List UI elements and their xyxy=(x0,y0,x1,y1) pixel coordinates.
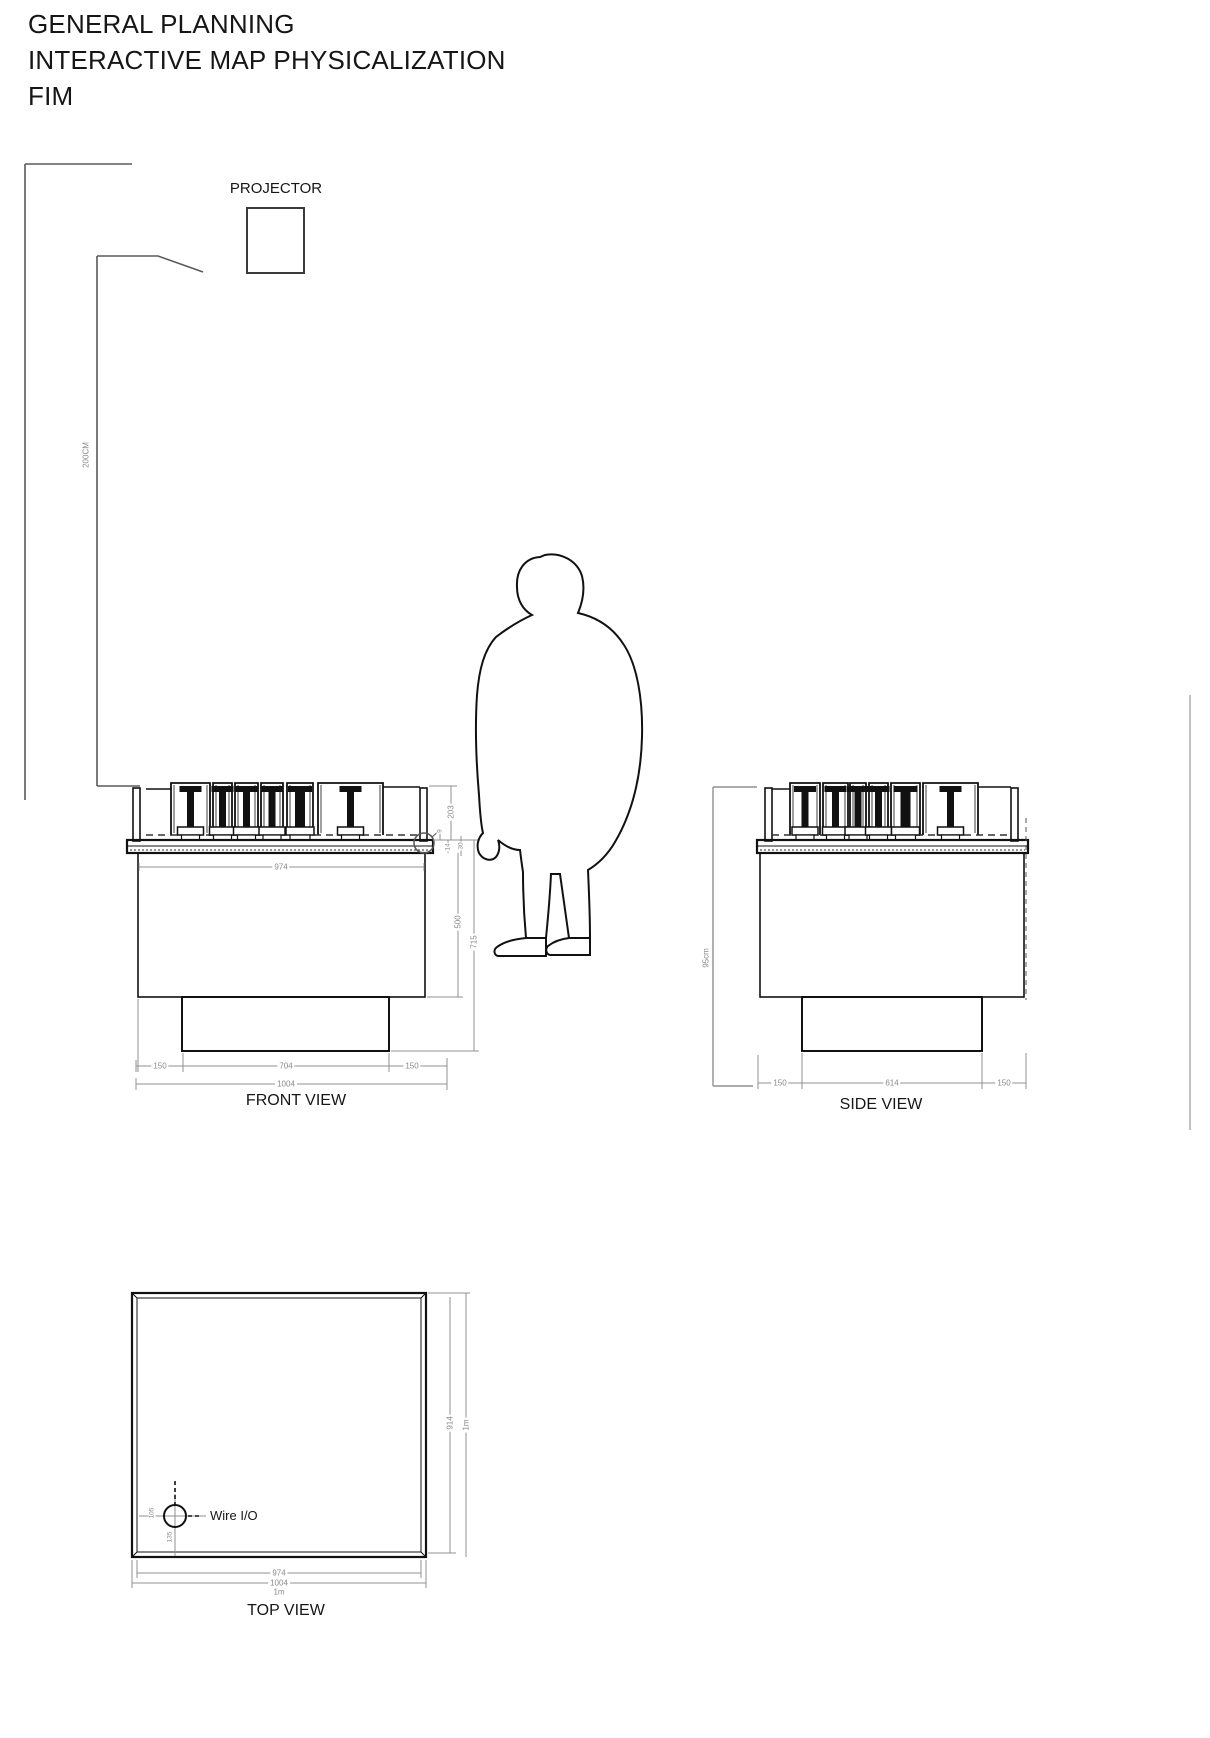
side-overall-height-dim: 95cm xyxy=(702,946,711,970)
front-body-height-dim: 500 xyxy=(454,913,463,930)
top-depth-dim: 914 xyxy=(446,1414,455,1431)
throw-height-dim: 200CM xyxy=(82,440,91,470)
side-left-margin-dim: 150 xyxy=(771,1079,788,1088)
side-base-depth-dim: 614 xyxy=(883,1079,900,1088)
side-right-margin-dim: 150 xyxy=(995,1079,1012,1088)
top-frame xyxy=(132,1293,426,1557)
front-view-drawing xyxy=(127,783,480,1090)
front-surface-width-dim: 974 xyxy=(272,863,289,872)
top-view-label: TOP VIEW xyxy=(247,1602,325,1620)
top-width-nominal-dim: 1m xyxy=(271,1588,286,1597)
front-pins xyxy=(178,786,364,840)
front-right-margin-dim: 150 xyxy=(403,1062,420,1071)
front-detail-top-dim: 9 xyxy=(437,828,444,834)
top-dimensions xyxy=(132,1293,470,1588)
front-mechanism-height-dim: 203 xyxy=(447,803,456,820)
top-inner-width-dim: 974 xyxy=(270,1569,287,1578)
side-view-label: SIDE VIEW xyxy=(840,1096,923,1114)
top-outer-width-dim: 1004 xyxy=(268,1579,290,1588)
human-figure xyxy=(476,554,642,956)
title-line-3: FIM xyxy=(28,78,506,114)
side-view-drawing xyxy=(713,783,1028,1089)
front-left-margin-dim: 150 xyxy=(151,1062,168,1071)
top-view-drawing xyxy=(132,1293,470,1588)
projector-box xyxy=(247,208,304,273)
title-line-2: INTERACTIVE MAP PHYSICALIZATION xyxy=(28,42,506,78)
side-table xyxy=(757,840,1028,1051)
front-view-label: FRONT VIEW xyxy=(246,1092,346,1110)
wire-offset-y-dim: 135 xyxy=(167,1531,174,1544)
projection-reference-lines xyxy=(25,164,203,800)
front-detail-low-dim: 30 xyxy=(458,841,465,850)
top-depth-nominal-dim: 1m xyxy=(462,1417,471,1432)
wire-io-label: Wire I/O xyxy=(210,1508,258,1523)
drawing-canvas xyxy=(0,0,1210,1738)
projector-label: PROJECTOR xyxy=(230,180,322,197)
front-total-height-dim: 715 xyxy=(470,933,479,950)
front-base-width-dim: 704 xyxy=(277,1062,294,1071)
title-line-1: GENERAL PLANNING xyxy=(28,6,506,42)
front-total-width-dim: 1004 xyxy=(275,1080,297,1089)
front-detail-mid-dim: 14 xyxy=(445,842,452,851)
wire-offset-x-dim: 105 xyxy=(149,1507,156,1520)
page-title: GENERAL PLANNING INTERACTIVE MAP PHYSICA… xyxy=(28,6,506,114)
side-pins xyxy=(792,786,964,840)
drawing-sheet: GENERAL PLANNING INTERACTIVE MAP PHYSICA… xyxy=(0,0,1210,1738)
